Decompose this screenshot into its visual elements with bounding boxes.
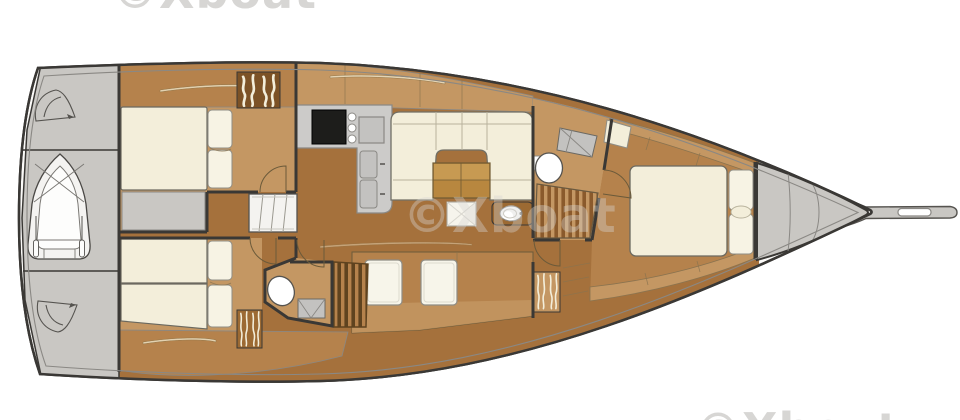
companionway-steps xyxy=(249,194,297,232)
bed-port-2 xyxy=(121,284,207,329)
fridge-lid xyxy=(360,151,377,178)
galley-sink xyxy=(359,117,384,143)
shower-grating-aft xyxy=(334,262,368,327)
burner-knob xyxy=(348,124,356,132)
watermark-top: ©Xboat xyxy=(112,0,317,19)
watermark-center: ©Xboat xyxy=(403,188,617,244)
sink-aft xyxy=(298,299,325,318)
bed-master xyxy=(630,166,727,256)
pillow xyxy=(729,170,753,210)
cooktop xyxy=(312,110,346,144)
pillow xyxy=(208,241,232,280)
bowsprit-slot xyxy=(898,209,931,217)
fridge-lid xyxy=(360,180,377,208)
pillow xyxy=(208,150,232,188)
seat-cushion xyxy=(365,260,402,305)
bed-starboard xyxy=(121,107,207,190)
bow-locker xyxy=(757,163,868,260)
watermark-bottom: ©Xboat xyxy=(695,403,900,420)
yacht-floorplan: ©Xboat ©Xboat ©Xboat xyxy=(0,0,960,420)
pillow xyxy=(208,285,232,327)
seat-cushion xyxy=(421,260,457,305)
pillow xyxy=(729,214,753,254)
burner-knob xyxy=(348,135,356,143)
pillow xyxy=(208,110,232,148)
berth-infill xyxy=(122,192,205,230)
burner-knob xyxy=(348,113,356,121)
bed-port-1 xyxy=(121,239,207,283)
yacht-floorplan-canvas: ©Xboat ©Xboat ©Xboat xyxy=(0,0,960,420)
